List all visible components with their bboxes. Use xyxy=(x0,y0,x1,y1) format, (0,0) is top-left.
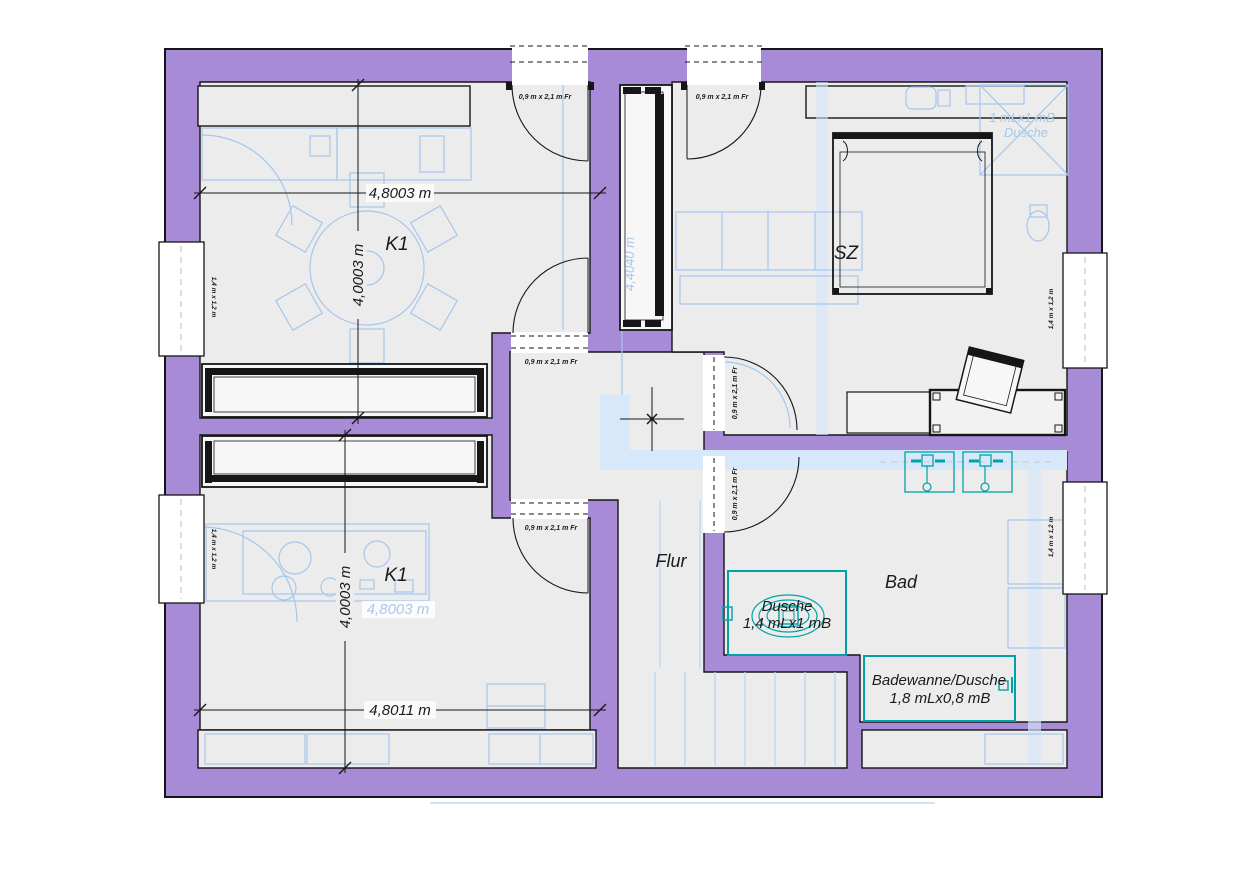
window-label-right-lower: 1,4 m x 1,2 m xyxy=(1048,517,1055,558)
dimension-lower-height-label: 4,0003 m xyxy=(337,566,354,629)
door-label-bedroom: 0,9 m x 2,1 m Fr xyxy=(732,365,739,419)
floor-plan-canvas: 4,4040 m xyxy=(0,0,1233,870)
ghost-wall-band-bedroom xyxy=(816,82,828,435)
attic-strip-bottom-left xyxy=(198,730,596,768)
shaft-column xyxy=(620,85,672,330)
window-label-right-upper: 1,4 m x 1,2 m xyxy=(1048,289,1055,330)
shower-size-label: 1,4 mLx1 mB xyxy=(743,615,831,632)
ghost-dimension-height: 4,4040 m xyxy=(622,237,637,291)
window-right-upper xyxy=(1063,253,1107,368)
room-label-k1-upper: K1 xyxy=(385,234,408,255)
room-label-bedroom: SZ xyxy=(834,243,860,264)
bathtub-name-label: Badewanne/Dusche xyxy=(872,672,1006,689)
dimension-upper-width-label: 4,8003 m xyxy=(369,185,432,202)
bathtub-size-label: 1,8 mLx0,8 mB xyxy=(890,690,991,707)
door-label-hall-upper: 0,9 m x 2,1 m Fr xyxy=(525,359,579,366)
ghost-landing-band xyxy=(600,395,630,453)
ghost-shower-size-label: 1 mLx1 mB xyxy=(989,110,1055,125)
door-label-hall-lower: 0,9 m x 2,1 m Fr xyxy=(525,525,579,532)
room-label-bath: Bad xyxy=(885,572,918,592)
shower-name-label: Dusche xyxy=(762,598,813,615)
window-label-left-upper: 1,4 m x 1,2 m xyxy=(210,277,217,318)
ghost-shower-name-label: Dusche xyxy=(1004,125,1048,140)
dimension-lower-width-label: 4,8011 m xyxy=(369,702,430,719)
door-label-top-left: 0,9 m x 2,1 m Fr xyxy=(519,94,573,101)
door-label-top-right: 0,9 m x 2,1 m Fr xyxy=(696,94,750,101)
ghost-dimension-width: 4,8003 m xyxy=(362,601,435,618)
ghost-dimension-width-label: 4,8003 m xyxy=(367,601,430,618)
floor-plan-page: 4,4040 m xyxy=(0,0,1233,870)
window-left-lower xyxy=(159,495,204,603)
window-left-upper xyxy=(159,242,204,356)
room-label-hall: Flur xyxy=(656,551,688,571)
roof-window-upper xyxy=(202,364,487,417)
dimension-upper-height-label: 4,0003 m xyxy=(350,244,367,307)
attic-strip-top-left xyxy=(198,86,470,126)
window-label-left-lower: 1,4 m x 1,2 m xyxy=(210,529,217,570)
door-label-bath: 0,9 m x 2,1 m Fr xyxy=(732,466,739,520)
window-right-lower xyxy=(1063,482,1107,594)
ghost-wall-band-bath xyxy=(1028,455,1041,765)
room-label-k1-lower: K1 xyxy=(384,565,407,586)
